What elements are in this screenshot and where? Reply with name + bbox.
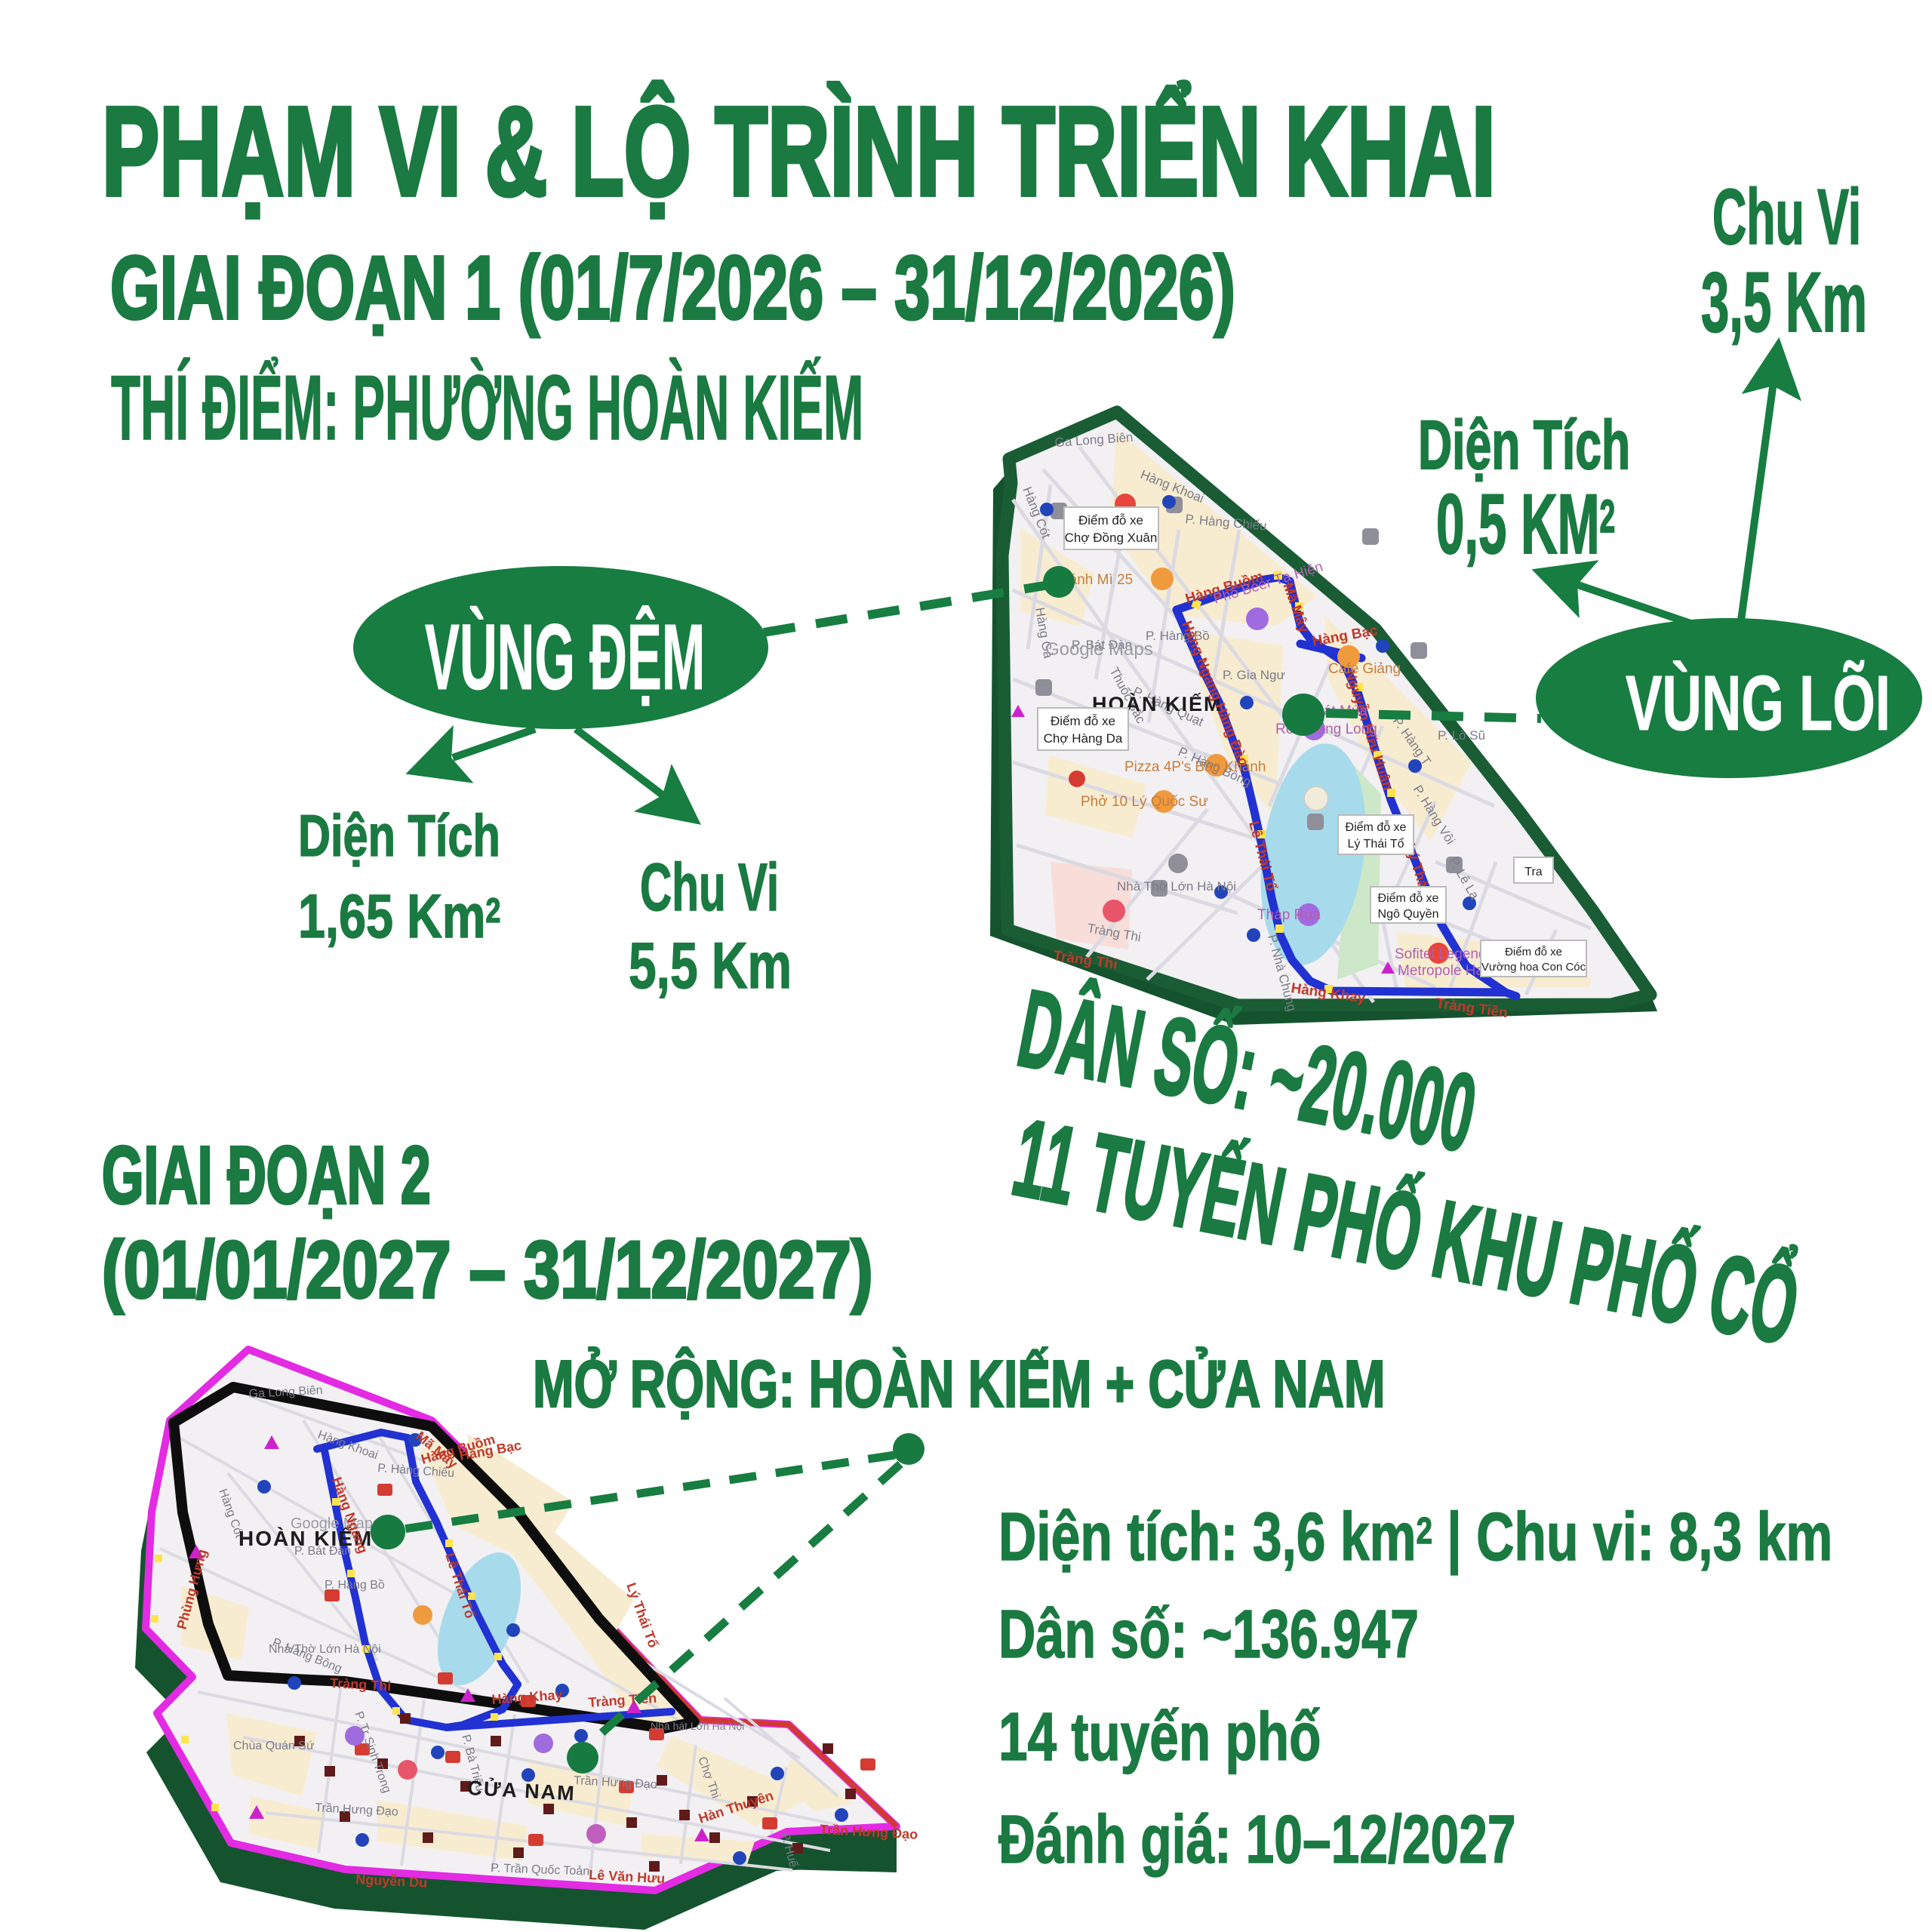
svg-text:Tràng Thi: Tràng Thi xyxy=(330,1675,392,1694)
svg-text:Phở 10 Lý Quốc Sư: Phở 10 Lý Quốc Sư xyxy=(1081,794,1208,810)
svg-text:P. Gia Ngư: P. Gia Ngư xyxy=(1223,668,1285,682)
svg-text:Tra: Tra xyxy=(1524,866,1543,878)
svg-text:Lý Thái Tổ: Lý Thái Tổ xyxy=(623,1581,661,1650)
svg-text:Chùa Quán Sứ: Chùa Quán Sứ xyxy=(233,1740,315,1752)
svg-text:Chợ Hàng Da: Chợ Hàng Da xyxy=(1044,731,1123,746)
svg-text:Google Maps: Google Maps xyxy=(1045,639,1153,660)
svg-text:Tháp Rùa: Tháp Rùa xyxy=(1257,907,1321,923)
svg-text:Pizza 4P's Bảo Khánh: Pizza 4P's Bảo Khánh xyxy=(1124,759,1266,775)
svg-text:Nhà hát Lớn Hà Nội: Nhà hát Lớn Hà Nội xyxy=(651,1720,744,1732)
svg-text:Điểm đỗ xe: Điểm đỗ xe xyxy=(1378,891,1439,905)
svg-text:Nhà Thờ Lớn Hà Nội: Nhà Thờ Lớn Hà Nội xyxy=(1117,879,1236,894)
svg-text:Điểm đỗ xe: Điểm đỗ xe xyxy=(1346,820,1407,834)
svg-text:Lý Thái Tổ: Lý Thái Tổ xyxy=(1347,837,1404,851)
svg-text:Vường hoa Con Cóc: Vường hoa Con Cóc xyxy=(1481,961,1586,974)
svg-text:Sofitel Legend: Sofitel Legend xyxy=(1395,946,1487,962)
svg-text:Chợ Đồng Xuân: Chợ Đồng Xuân xyxy=(1065,531,1158,545)
svg-text:Cafe Giảng: Cafe Giảng xyxy=(1328,661,1401,677)
svg-text:Điểm đỗ xe: Điểm đỗ xe xyxy=(1078,513,1143,528)
svg-text:P. Hàng Bồ: P. Hàng Bồ xyxy=(325,1579,385,1592)
svg-text:Ngô Quyền: Ngô Quyền xyxy=(1378,908,1439,921)
svg-text:Điểm đỗ xe: Điểm đỗ xe xyxy=(1505,946,1562,958)
svg-text:Điểm đỗ xe: Điểm đỗ xe xyxy=(1051,714,1115,728)
svg-text:P. Lò Sũ: P. Lò Sũ xyxy=(1438,728,1485,743)
svg-text:Nhà Thờ Lớn Hà Nội: Nhà Thờ Lớn Hà Nội xyxy=(269,1643,381,1656)
